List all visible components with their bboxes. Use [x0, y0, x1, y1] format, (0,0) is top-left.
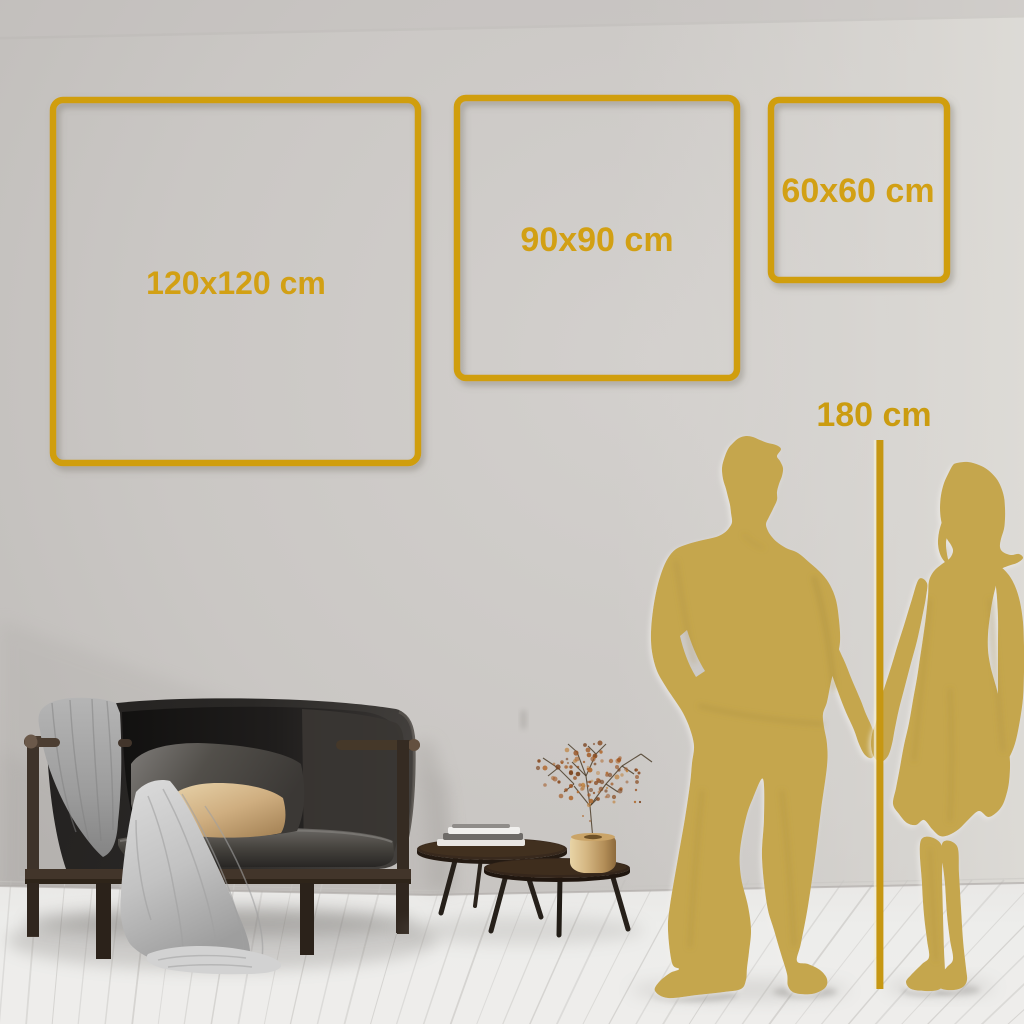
svg-text:120x120 cm: 120x120 cm — [146, 265, 326, 301]
svg-text:60x60 cm: 60x60 cm — [781, 172, 934, 210]
svg-text:180 cm: 180 cm — [816, 396, 931, 434]
svg-text:90x90 cm: 90x90 cm — [520, 221, 673, 259]
